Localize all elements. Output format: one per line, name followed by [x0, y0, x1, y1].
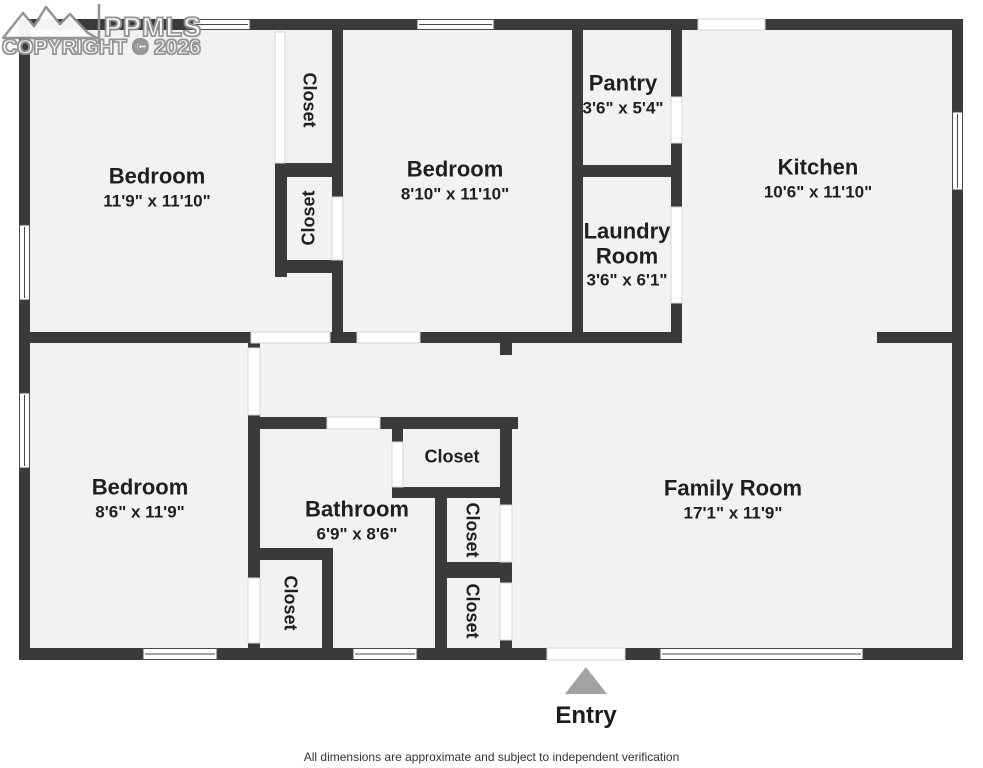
- door-opening: [332, 197, 343, 260]
- door-opening: [392, 442, 403, 487]
- door-opening: [500, 505, 512, 562]
- room-label-bedroom-top-left: Bedroom 11'9" x 11'10": [103, 165, 210, 212]
- room-name: Bathroom: [305, 498, 409, 523]
- wall: [332, 260, 343, 332]
- mountain-logo-shape: [3, 7, 97, 38]
- room-name: Bedroom: [401, 158, 509, 183]
- disclaimer-text: All dimensions are approximate and subje…: [0, 750, 983, 764]
- wall: [500, 343, 512, 355]
- room-name: Laundry Room: [571, 219, 683, 268]
- door-opening: [357, 332, 420, 343]
- wall: [572, 165, 682, 177]
- wall: [392, 417, 403, 442]
- room-label-pantry: Pantry 3'6" x 5'4": [583, 72, 664, 119]
- watermark-copyright: COPYRIGHT © 2026: [2, 36, 201, 60]
- wall: [332, 30, 343, 197]
- door-opening: [327, 417, 380, 429]
- closet-label-4: Closet: [462, 502, 483, 557]
- wall: [248, 417, 327, 429]
- wall: [572, 19, 583, 343]
- room-name: Kitchen: [764, 156, 872, 181]
- door-opening: [671, 97, 682, 143]
- wall: [500, 640, 512, 660]
- room-name: Bedroom: [103, 165, 210, 190]
- wall: [877, 332, 963, 343]
- floor-plan: [0, 0, 983, 768]
- wall: [671, 143, 682, 207]
- watermark: PPMLS COPYRIGHT © 2026: [0, 0, 320, 70]
- door-opening: [248, 348, 260, 415]
- closet-label-5: Closet: [462, 583, 483, 638]
- room-label-bedroom-center: Bedroom 8'10" x 11'10": [401, 158, 509, 205]
- room-name: Pantry: [583, 72, 664, 97]
- entry-arrow-icon: [565, 667, 607, 694]
- room-label-kitchen: Kitchen 10'6" x 11'10": [764, 156, 872, 203]
- entry-door-opening: [547, 648, 625, 660]
- room-dims: 10'6" x 11'10": [764, 182, 872, 202]
- closet-label-1: Closet: [299, 72, 320, 127]
- door-opening: [698, 19, 765, 30]
- entry-label: Entry: [555, 702, 616, 730]
- room-dims: 8'6" x 11'9": [92, 502, 189, 522]
- wall: [330, 332, 357, 343]
- wall: [322, 548, 333, 660]
- wall: [19, 332, 251, 343]
- wall: [420, 332, 677, 343]
- room-label-family-room: Family Room 17'1" x 11'9": [664, 477, 802, 524]
- closet-label-2: Closet: [299, 190, 320, 245]
- room-dims: 6'9" x 8'6": [305, 524, 409, 544]
- wall: [671, 19, 682, 97]
- room-dims: 17'1" x 11'9": [664, 503, 802, 523]
- wall: [392, 487, 512, 498]
- door-opening: [248, 578, 260, 643]
- room-name: Family Room: [664, 477, 802, 502]
- wall: [275, 163, 287, 277]
- door-opening: [251, 332, 330, 343]
- room-name: Bedroom: [92, 476, 189, 501]
- floor-plan-page: Bedroom 11'9" x 11'10" Bedroom 8'10" x 1…: [0, 0, 983, 768]
- room-dims: 3'6" x 6'1": [571, 271, 683, 291]
- wall: [500, 417, 512, 505]
- closet-label-3: Closet: [424, 447, 479, 468]
- room-dims: 11'9" x 11'10": [103, 191, 210, 211]
- closet-label-6: Closet: [280, 575, 301, 630]
- room-label-bathroom: Bathroom 6'9" x 8'6": [305, 498, 409, 545]
- room-label-bedroom-bottom-left: Bedroom 8'6" x 11'9": [92, 476, 189, 523]
- room-dims: 8'10" x 11'10": [401, 184, 509, 204]
- wall: [248, 548, 333, 560]
- room-dims: 3'6" x 5'4": [583, 98, 664, 118]
- wall: [248, 643, 260, 660]
- room-label-laundry: Laundry Room 3'6" x 6'1": [571, 219, 683, 290]
- door-opening: [500, 583, 512, 640]
- wall: [500, 562, 512, 583]
